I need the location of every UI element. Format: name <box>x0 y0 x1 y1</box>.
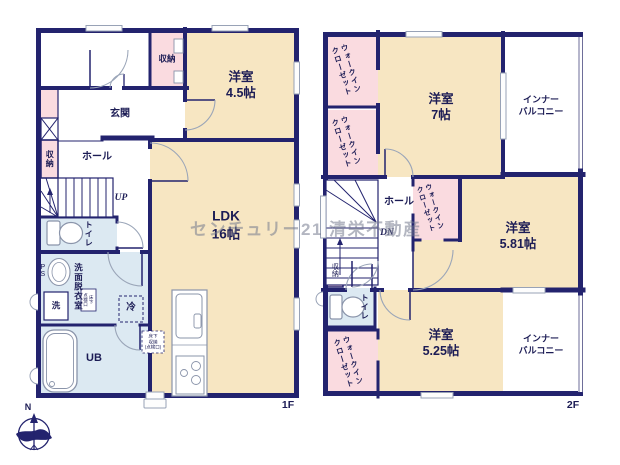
room-label-toilet-1f: トイレ <box>83 221 93 248</box>
room-label-hall-2f: ホール <box>384 196 414 209</box>
room-label-bedroom-5-25: 洋室 5.25帖 <box>423 327 460 360</box>
washer-label: 洗 <box>52 300 61 311</box>
compass-north-label: N <box>25 402 32 414</box>
entry-step <box>144 399 166 408</box>
room-label-storage-top: 収納 <box>158 53 175 64</box>
inner-balcony-label-1: インナー バルコニー <box>519 94 564 117</box>
room-label-toilet-2f: トイレ <box>359 294 369 321</box>
kitchen-icon <box>172 290 207 396</box>
room-label-storage-hall: 収納 <box>44 150 54 168</box>
closet-door-mark <box>174 39 183 53</box>
stairs-up-label: UP <box>115 192 128 204</box>
room-label-washroom: 洗面脱衣室 <box>72 263 83 311</box>
room-label-entrance: 玄関 <box>110 108 130 121</box>
stairs-1f <box>41 178 113 217</box>
room-label-bath-ub: UB <box>86 351 102 365</box>
room-label-bedroom-4-5: 洋室 4.5帖 <box>226 69 256 102</box>
room-label-storage-2f: 収納 <box>330 263 339 277</box>
compass-icon <box>16 413 52 450</box>
underfloor-storage-label: 床下 収納 (点検口) <box>145 334 162 351</box>
room-label-hall-1f: ホール <box>82 151 112 164</box>
toilet-icon <box>330 295 342 319</box>
ps-label: PS <box>38 264 47 278</box>
watermark: センチュリー21 清栄不動産 <box>190 215 422 240</box>
floorplan-image: 収納 洋室 4.5帖 玄関 収納 ホール UP トイレ PS 洗面脱衣室 洗 床… <box>0 0 620 465</box>
closet-door-mark <box>174 71 183 83</box>
fridge-label: 冷 <box>126 302 136 314</box>
room-label-bedroom-5-81: 洋室 5.81帖 <box>500 220 537 253</box>
floor2-label: 2F <box>567 399 579 413</box>
toilet-icon <box>47 221 60 245</box>
room-label-bedroom-7: 洋室 7帖 <box>428 91 453 124</box>
underfloor-inspection-label: 床下 点検口 <box>83 293 94 307</box>
inner-balcony-label-2: インナー バルコニー <box>519 333 564 356</box>
floor1-label: 1F <box>282 399 294 413</box>
